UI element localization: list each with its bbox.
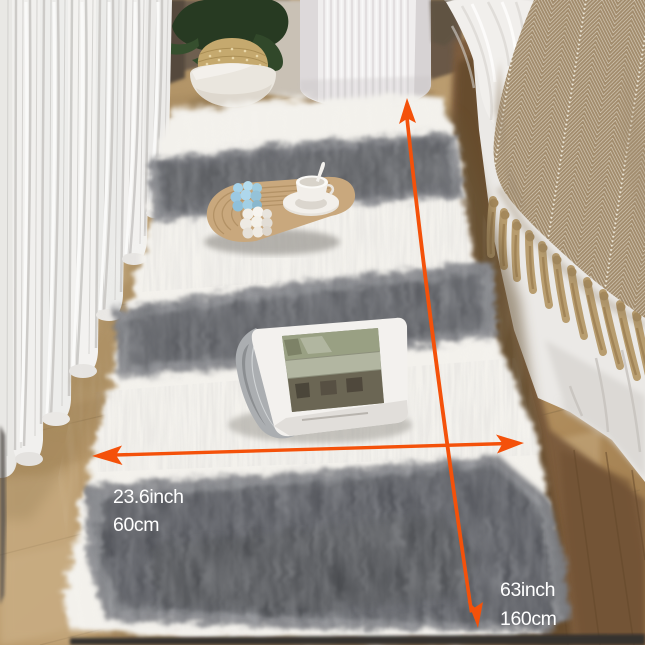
svg-text:23.6inch: 23.6inch: [113, 486, 184, 508]
svg-text:160cm: 160cm: [500, 608, 557, 630]
svg-text:60cm: 60cm: [113, 514, 159, 536]
svg-text:63inch: 63inch: [500, 579, 555, 601]
